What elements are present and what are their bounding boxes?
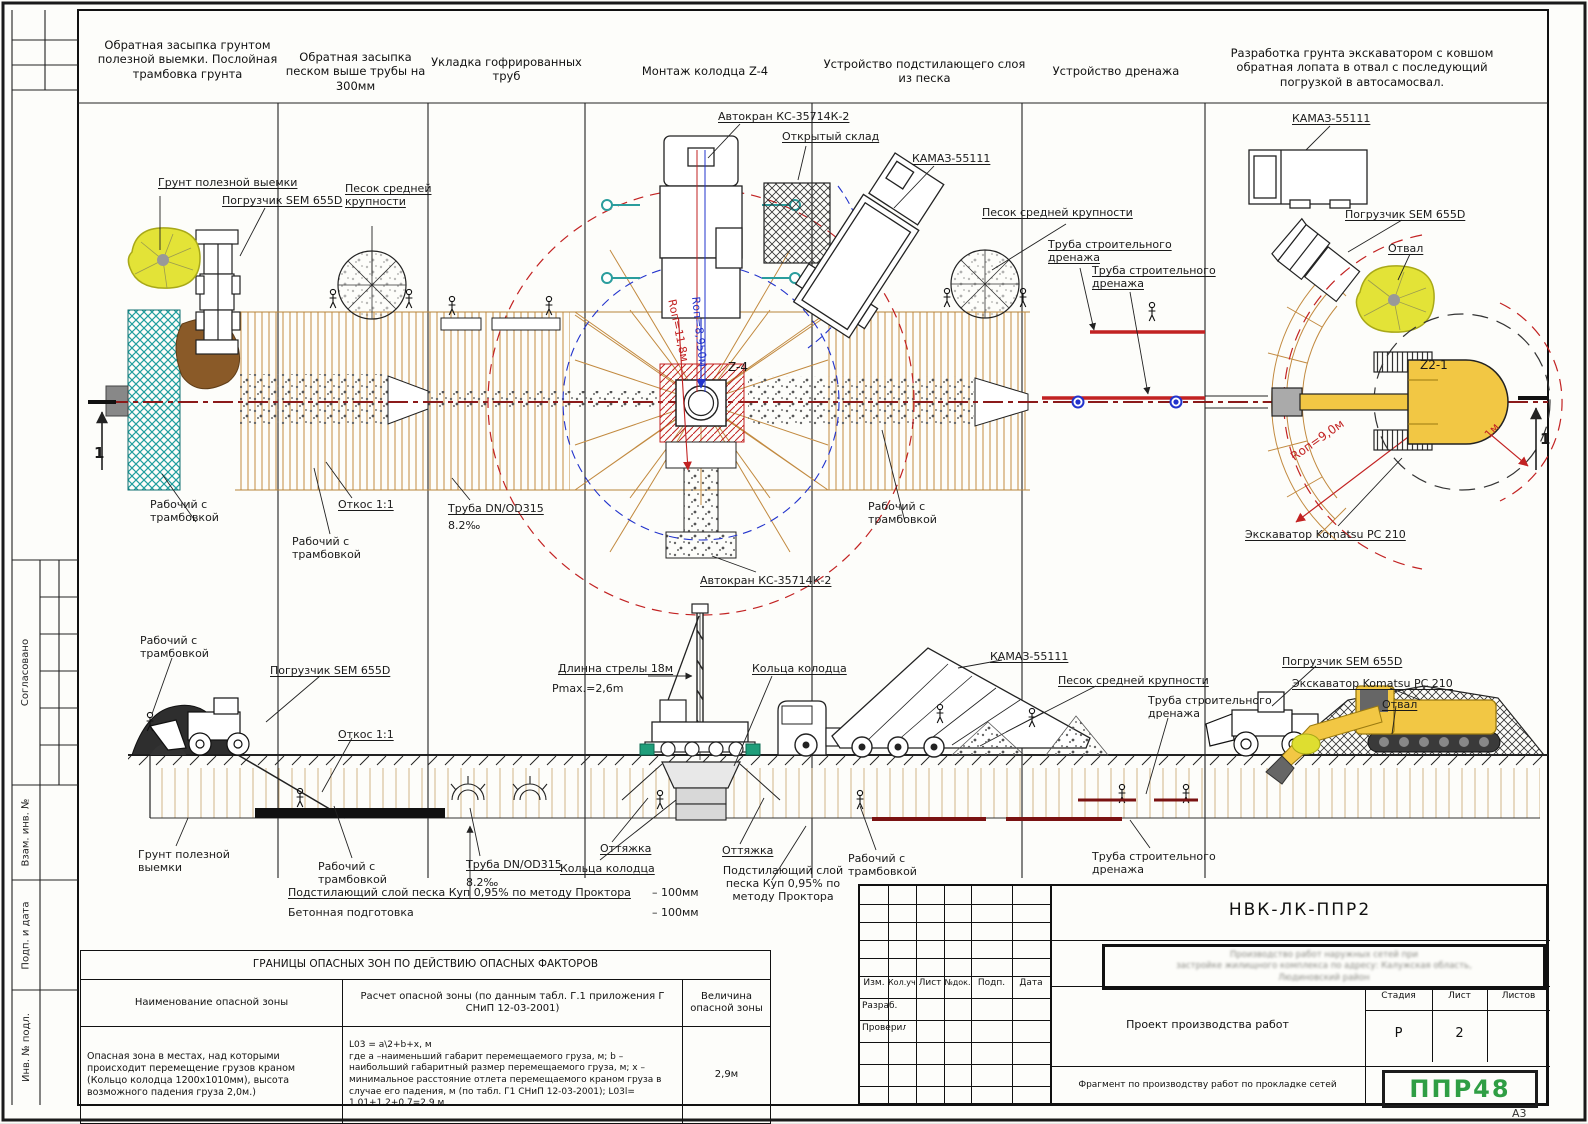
label-pmax: Pmax.=2,6m	[552, 682, 624, 695]
label-pipe-dn-bottom: Труба DN/OD315	[466, 858, 562, 871]
label-concrete-value: – 100мм	[652, 906, 699, 919]
label-sand-plan-left: Песок средней крупности	[345, 182, 463, 208]
label-soil-plan: Грунт полезной выемки	[158, 176, 297, 189]
crane-section-icon	[640, 604, 760, 760]
label-sand-plan-right: Песок средней крупности	[982, 206, 1133, 219]
label-excavator-plan: Экскаватор Komatsu PC 210	[1245, 528, 1406, 541]
label-sand-section: Песок средней крупности	[1058, 674, 1209, 687]
label-drain-pipe-bottom: Труба строительного дренажа	[1092, 850, 1252, 876]
stamp-col-doc: №док.	[944, 978, 971, 987]
danger-col-calc: Расчет опасной зоны (по данным табл. Г.1…	[343, 980, 683, 1027]
label-pipe-dn-plan: Труба DN/OD315	[448, 502, 544, 515]
label-kamaz-plan-center: КАМАЗ-55111	[912, 152, 990, 165]
label-loader-plan-left: Погрузчик SEM 655D	[222, 194, 342, 207]
label-otval-plan: Отвал	[1388, 242, 1423, 255]
stamp-col-koluch: Кол.уч.	[888, 978, 916, 987]
strip-replace-inv: Взам. инв. №	[12, 785, 40, 880]
label-worker-bottom-3: Рабочий с трамбовкой	[848, 852, 966, 878]
kamaz-plan-right-icon	[1249, 150, 1367, 208]
label-worker-plan-1: Рабочий с трамбовкой	[150, 498, 262, 524]
label-worker-section-1: Рабочий с трамбовкой	[140, 634, 252, 660]
spoil-blob-left	[128, 228, 200, 288]
label-underlayment-value: – 100мм	[652, 886, 699, 899]
label-crane-plan-below: Автокран КС-35714К-2	[700, 574, 831, 587]
section-mark-right: 1	[1540, 430, 1550, 448]
label-well-rings-bottom: Кольца колодца	[560, 862, 655, 875]
label-drain-pipe-plan-2: Труба строительного дренажа	[1092, 264, 1232, 290]
label-excavator-section: Экскаватор Komatsu PC 210	[1292, 677, 1453, 690]
fragment-title: Фрагмент по производству работ по прокла…	[1055, 1080, 1360, 1090]
danger-row-value: 2,9м	[683, 1027, 771, 1124]
drawing-sheet: Согласовано Взам. инв. № Подп. и дата Ин…	[0, 0, 1588, 1123]
danger-row-calc-formula: L03 = a\2+b+x, м	[349, 1040, 676, 1052]
doc-code: НВК-ЛК-ППР2	[1050, 900, 1550, 920]
danger-col-value: Величина опасной зоны	[683, 980, 771, 1027]
label-crane-plan: Автокран КС-35714К-2	[718, 110, 849, 123]
label-kamaz-plan-right: КАМАЗ-55111	[1292, 112, 1370, 125]
label-guy-rope-right: Оттяжка	[722, 844, 773, 857]
stamp-col-list: Лист	[916, 978, 944, 988]
stage-header-sand-bedding: Устройство подстилающего слоя из песка	[822, 57, 1027, 86]
label-concrete-prep: Бетонная подготовка	[288, 906, 414, 919]
label-open-storage: Открытый склад	[782, 130, 879, 143]
stamp-col-podp: Подп.	[971, 978, 1012, 988]
stamp-col-izm: Изм.	[860, 978, 888, 988]
danger-table-title: ГРАНИЦЫ ОПАСНЫХ ЗОН ПО ДЕЙСТВИЮ ОПАСНЫХ …	[81, 951, 771, 980]
spoil-blob-right	[1356, 266, 1434, 332]
stage-header-excavation: Разработка грунта экскаватором с ковшом …	[1212, 46, 1512, 89]
loader-plan-right-icon	[1271, 218, 1364, 305]
strip-agreed: Согласовано	[12, 560, 40, 785]
ppr48-logo: ППР48	[1382, 1070, 1538, 1108]
stage-header-backfill-soil: Обратная засыпка грунтом полезной выемки…	[95, 38, 280, 81]
sheets-label: Листов	[1487, 991, 1550, 1001]
stage-label: Стадия	[1365, 991, 1432, 1001]
label-underlayment-line: Подстилающий слой песка Куп 0,95% по мет…	[288, 886, 631, 899]
label-worker-plan-3: Рабочий с трамбовкой	[868, 500, 980, 526]
label-loader-plan-right: Погрузчик SEM 655D	[1345, 208, 1465, 221]
sand-pile-plan-right	[944, 250, 1027, 318]
project-title: Проект производства работ	[1050, 1018, 1365, 1031]
label-soil-bottom: Грунт полезной выемки	[138, 848, 256, 874]
sheet-label: Лист	[1432, 991, 1487, 1001]
label-worker-bottom-2: Рабочий с трамбовкой	[318, 860, 436, 886]
project-address-redacted: Производство работ наружных сетей при за…	[1102, 944, 1546, 990]
sheet-value: 2	[1432, 1026, 1487, 1041]
label-otval-section: Отвал	[1382, 698, 1417, 711]
label-boom-length: Длинна стрелы 18м	[558, 662, 673, 675]
danger-col-name: Наименование опасной зоны	[81, 980, 343, 1027]
label-slope-section: Откос 1:1	[338, 728, 394, 741]
stage-header-pipe-laying: Укладка гофрированных труб	[428, 55, 585, 84]
danger-row-name: Опасная зона в местах, над которыми прои…	[81, 1027, 343, 1124]
label-slope-plan: Откос 1:1	[338, 498, 394, 511]
section-mark-left: 1	[94, 444, 104, 462]
title-block: Изм. Кол.уч. Лист №док. Подп. Дата Разра…	[858, 884, 1548, 1105]
label-loader-section-right: Погрузчик SEM 655D	[1282, 655, 1402, 668]
sand-pile-plan-left	[330, 251, 413, 319]
label-loader-section-left: Погрузчик SEM 655D	[270, 664, 390, 677]
danger-zones-table: ГРАНИЦЫ ОПАСНЫХ ЗОН ПО ДЕЙСТВИЮ ОПАСНЫХ …	[80, 950, 770, 1124]
label-drain-pipe-plan-1: Труба строительного дренажа	[1048, 238, 1188, 264]
strip-sign-date: Подп. и дата	[12, 880, 40, 990]
danger-row-calc-text: где a –наименьший габарит перемещаемого …	[349, 1052, 676, 1110]
section-view	[128, 604, 1548, 820]
label-worker-plan-2: Рабочий с трамбовкой	[292, 535, 404, 561]
label-z21: Z2-1	[1420, 358, 1448, 372]
label-kamaz-section: КАМАЗ-55111	[990, 650, 1068, 663]
label-drain-pipe-section-top: Труба строительного дренажа	[1148, 694, 1296, 720]
label-pipe-slope-plan: 8.2‰	[448, 519, 480, 532]
stamp-checked: Проверил	[862, 1023, 906, 1033]
stage-header-drainage: Устройство дренажа	[1030, 64, 1202, 78]
stamp-col-data: Дата	[1012, 978, 1050, 988]
label-well-rings-top: Кольца колодца	[752, 662, 847, 675]
strip-inv-orig: Инв. № подл.	[12, 990, 40, 1105]
label-underlayment-block: Подстилающий слой песка Куп 0,95% по мет…	[716, 864, 850, 904]
label-z4: Z-4	[728, 360, 748, 374]
open-storage-icon	[764, 183, 830, 263]
stage-header-backfill-sand: Обратная засыпка песком выше трубы на 30…	[283, 50, 428, 93]
stamp-developed: Разраб.	[862, 1001, 902, 1011]
stage-header-well-mounting: Монтаж колодца Z-4	[600, 64, 810, 78]
stage-value: Р	[1365, 1026, 1432, 1041]
format-label: А3	[1512, 1107, 1527, 1120]
label-guy-rope-left: Оттяжка	[600, 842, 651, 855]
loader-section-left-icon	[150, 698, 249, 755]
